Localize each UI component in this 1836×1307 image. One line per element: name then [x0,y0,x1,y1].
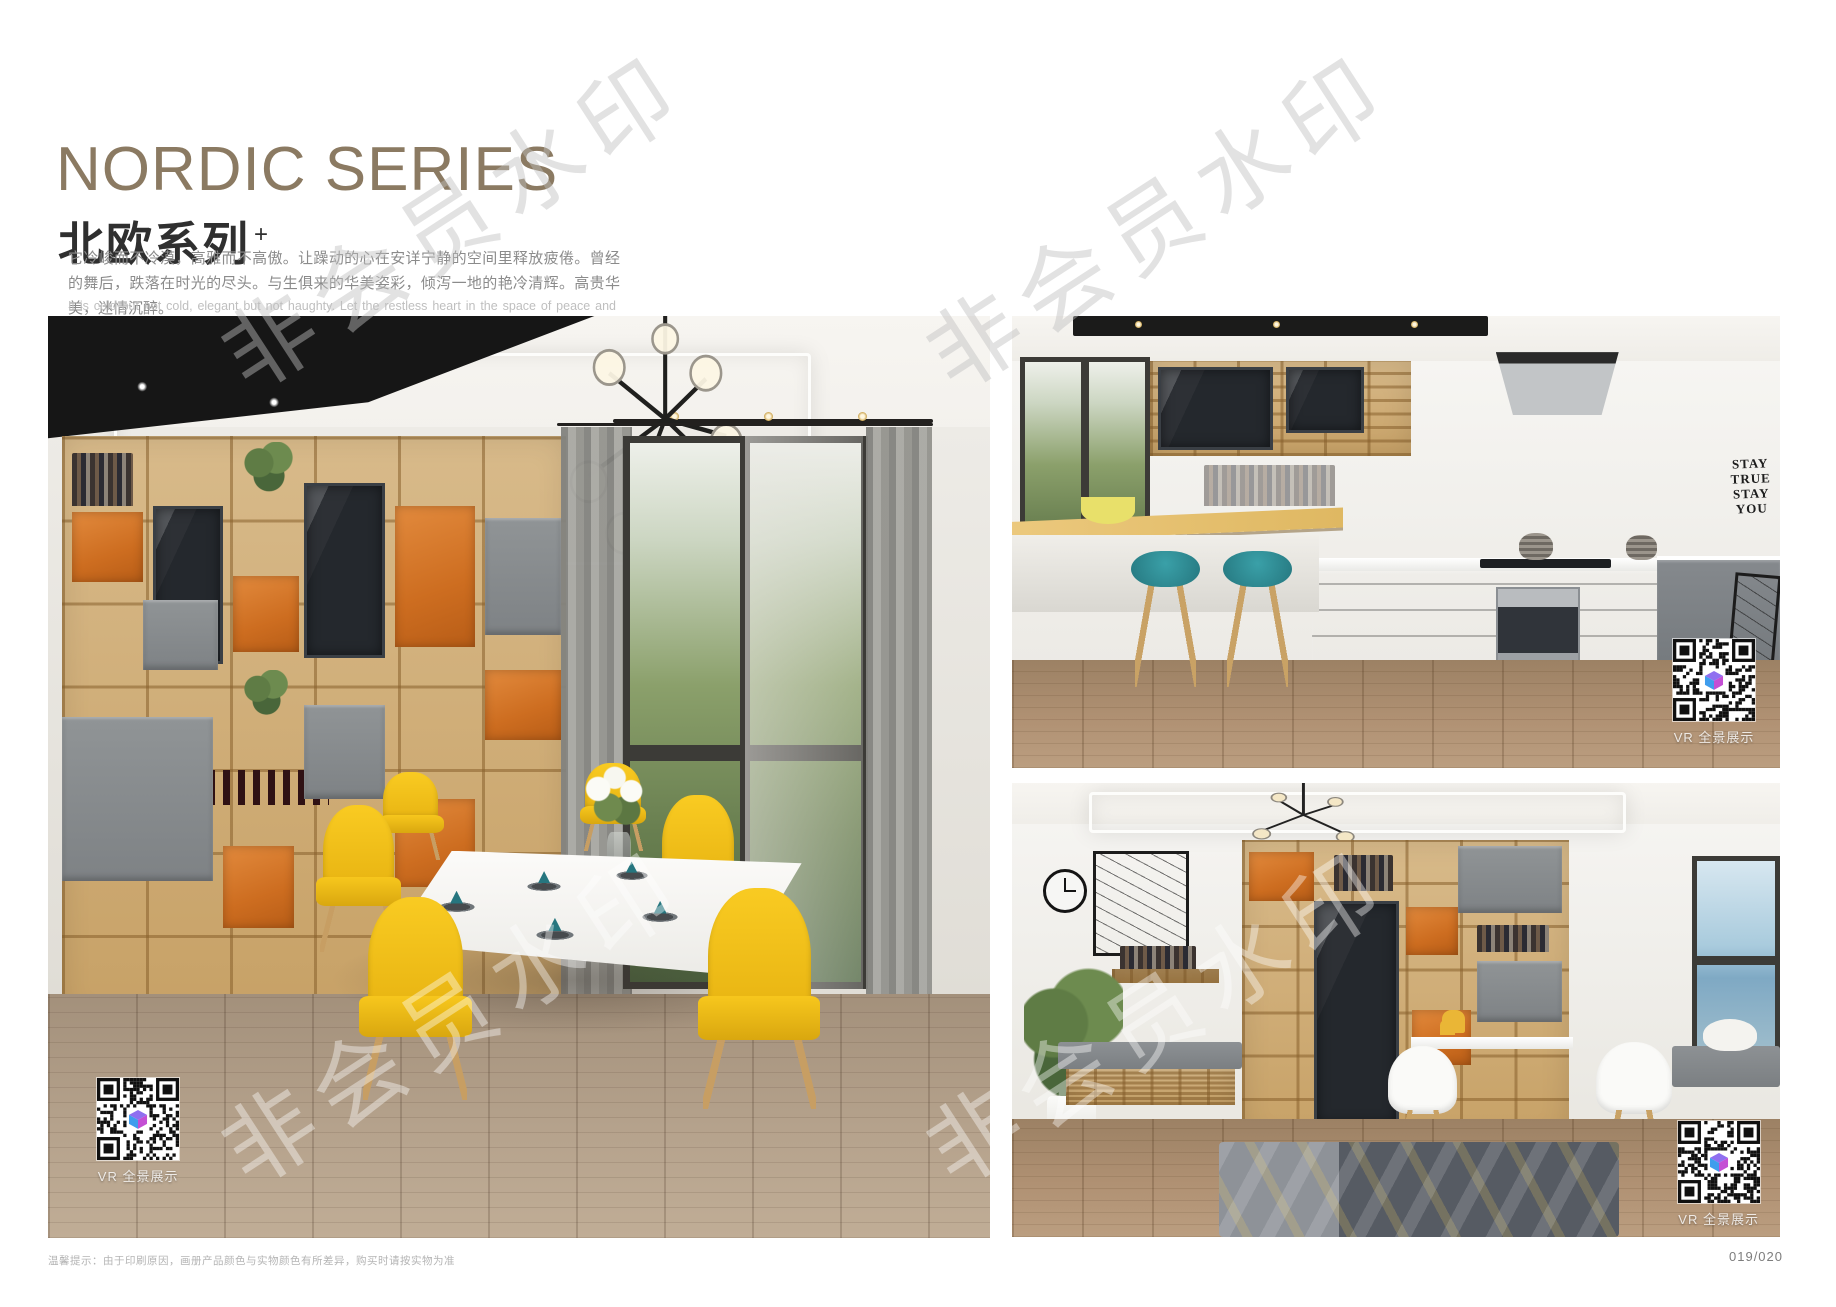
desk-surface [1411,1037,1572,1048]
shelf-plant [244,670,289,717]
vr-panorama-label: VR 全景展示 [1654,727,1774,746]
fruit-bowl [1081,497,1135,524]
book-row [1334,855,1393,892]
gas-cooktop [1480,559,1611,568]
geometric-rug [1219,1142,1618,1237]
glass-display-cabinet [1314,901,1399,1126]
vr-panorama-label: VR 全景展示 [1659,1209,1779,1228]
teal-bar-stool [1223,551,1292,587]
qr-code [1673,639,1755,721]
orange-shelf-cell [223,846,294,928]
shelf-plant [244,442,294,495]
print-disclaimer: 温馨提示：由于印刷原因，画册产品颜色与实物颜色有所差异，购买时请按实物为准 [48,1253,455,1268]
chair-legs [703,1034,816,1109]
counter-pot [1519,533,1554,560]
glass-upper-cabinet [1286,367,1364,433]
window-daybed [1672,1046,1780,1087]
desk-lamp [1442,1010,1465,1033]
curtain-rail [557,423,934,426]
counter-kettle [1626,535,1657,560]
page-number: 019/020 [1729,1249,1783,1264]
place-setting [536,923,574,940]
track-spotlight [858,412,867,421]
vr-qr-badge: VR 全景展示 [1659,1121,1779,1228]
place-setting [527,876,561,891]
gray-cabinet-door [1458,846,1562,913]
window-bench [1058,1042,1242,1069]
bench-base [1066,1069,1235,1105]
gray-cabinet-door [485,518,561,635]
vr-panorama-label: VR 全景展示 [78,1166,198,1185]
orange-shelf-cell [395,506,476,647]
glass-upper-cabinet [1158,367,1273,451]
white-desk-chair [1596,1042,1673,1115]
shelf-decor [1120,946,1197,969]
wall-lettering-line: STAY [1726,485,1776,502]
stool-legs [1135,578,1196,686]
white-desk-chair [1388,1046,1457,1114]
upper-wood-cabinets [1150,361,1411,456]
wall-shelf [1112,969,1220,983]
orange-shelf-cell [485,670,561,740]
photo-dining-room: VR 全景展示 [48,316,990,1238]
title-plus-superscript: + [254,221,270,248]
orange-shelf-cell [233,576,299,652]
orange-shelf-cell [72,512,143,582]
curtain-right [866,427,932,999]
vr-qr-badge: VR 全景展示 [78,1078,198,1185]
chair-legs [363,1031,467,1100]
stool-legs [1227,578,1288,686]
white-cushion [1703,1019,1757,1051]
orange-shelf-cell [1249,852,1314,901]
wall-lettering-line: YOU [1727,500,1777,517]
dining-chair [698,888,820,1109]
vr-qr-badge: VR 全景展示 [1654,639,1774,746]
wall-lettering: STAY TRUE STAY YOU [1725,455,1777,517]
series-title-english: NORDIC SERIES [56,134,558,205]
dining-chair [359,897,472,1100]
book-row [1477,925,1549,952]
window-mullion-horizontal [1697,956,1775,965]
qr-code [1678,1121,1760,1203]
range-hood [1496,352,1619,415]
utensil-rail [1204,465,1335,506]
place-setting [616,866,648,880]
gray-cabinet-door [143,600,219,670]
glass-display-cabinet [304,483,385,659]
wall-clock [1043,869,1087,913]
gray-cabinet-door [62,717,213,881]
flower-bouquet [585,763,651,837]
gray-cabinet-door [1477,961,1562,1022]
book-row [72,453,132,506]
qr-code [97,1078,179,1160]
orange-shelf-cell [1406,907,1458,956]
photo-study: VR 全景展示 [1012,783,1780,1237]
gray-cabinet-door [304,705,385,799]
place-setting [642,906,678,922]
photo-kitchen: STAY TRUE STAY YOU VR 全景展示 [1012,316,1780,768]
abstract-art-frame [1093,851,1189,955]
teal-bar-stool [1131,551,1200,587]
